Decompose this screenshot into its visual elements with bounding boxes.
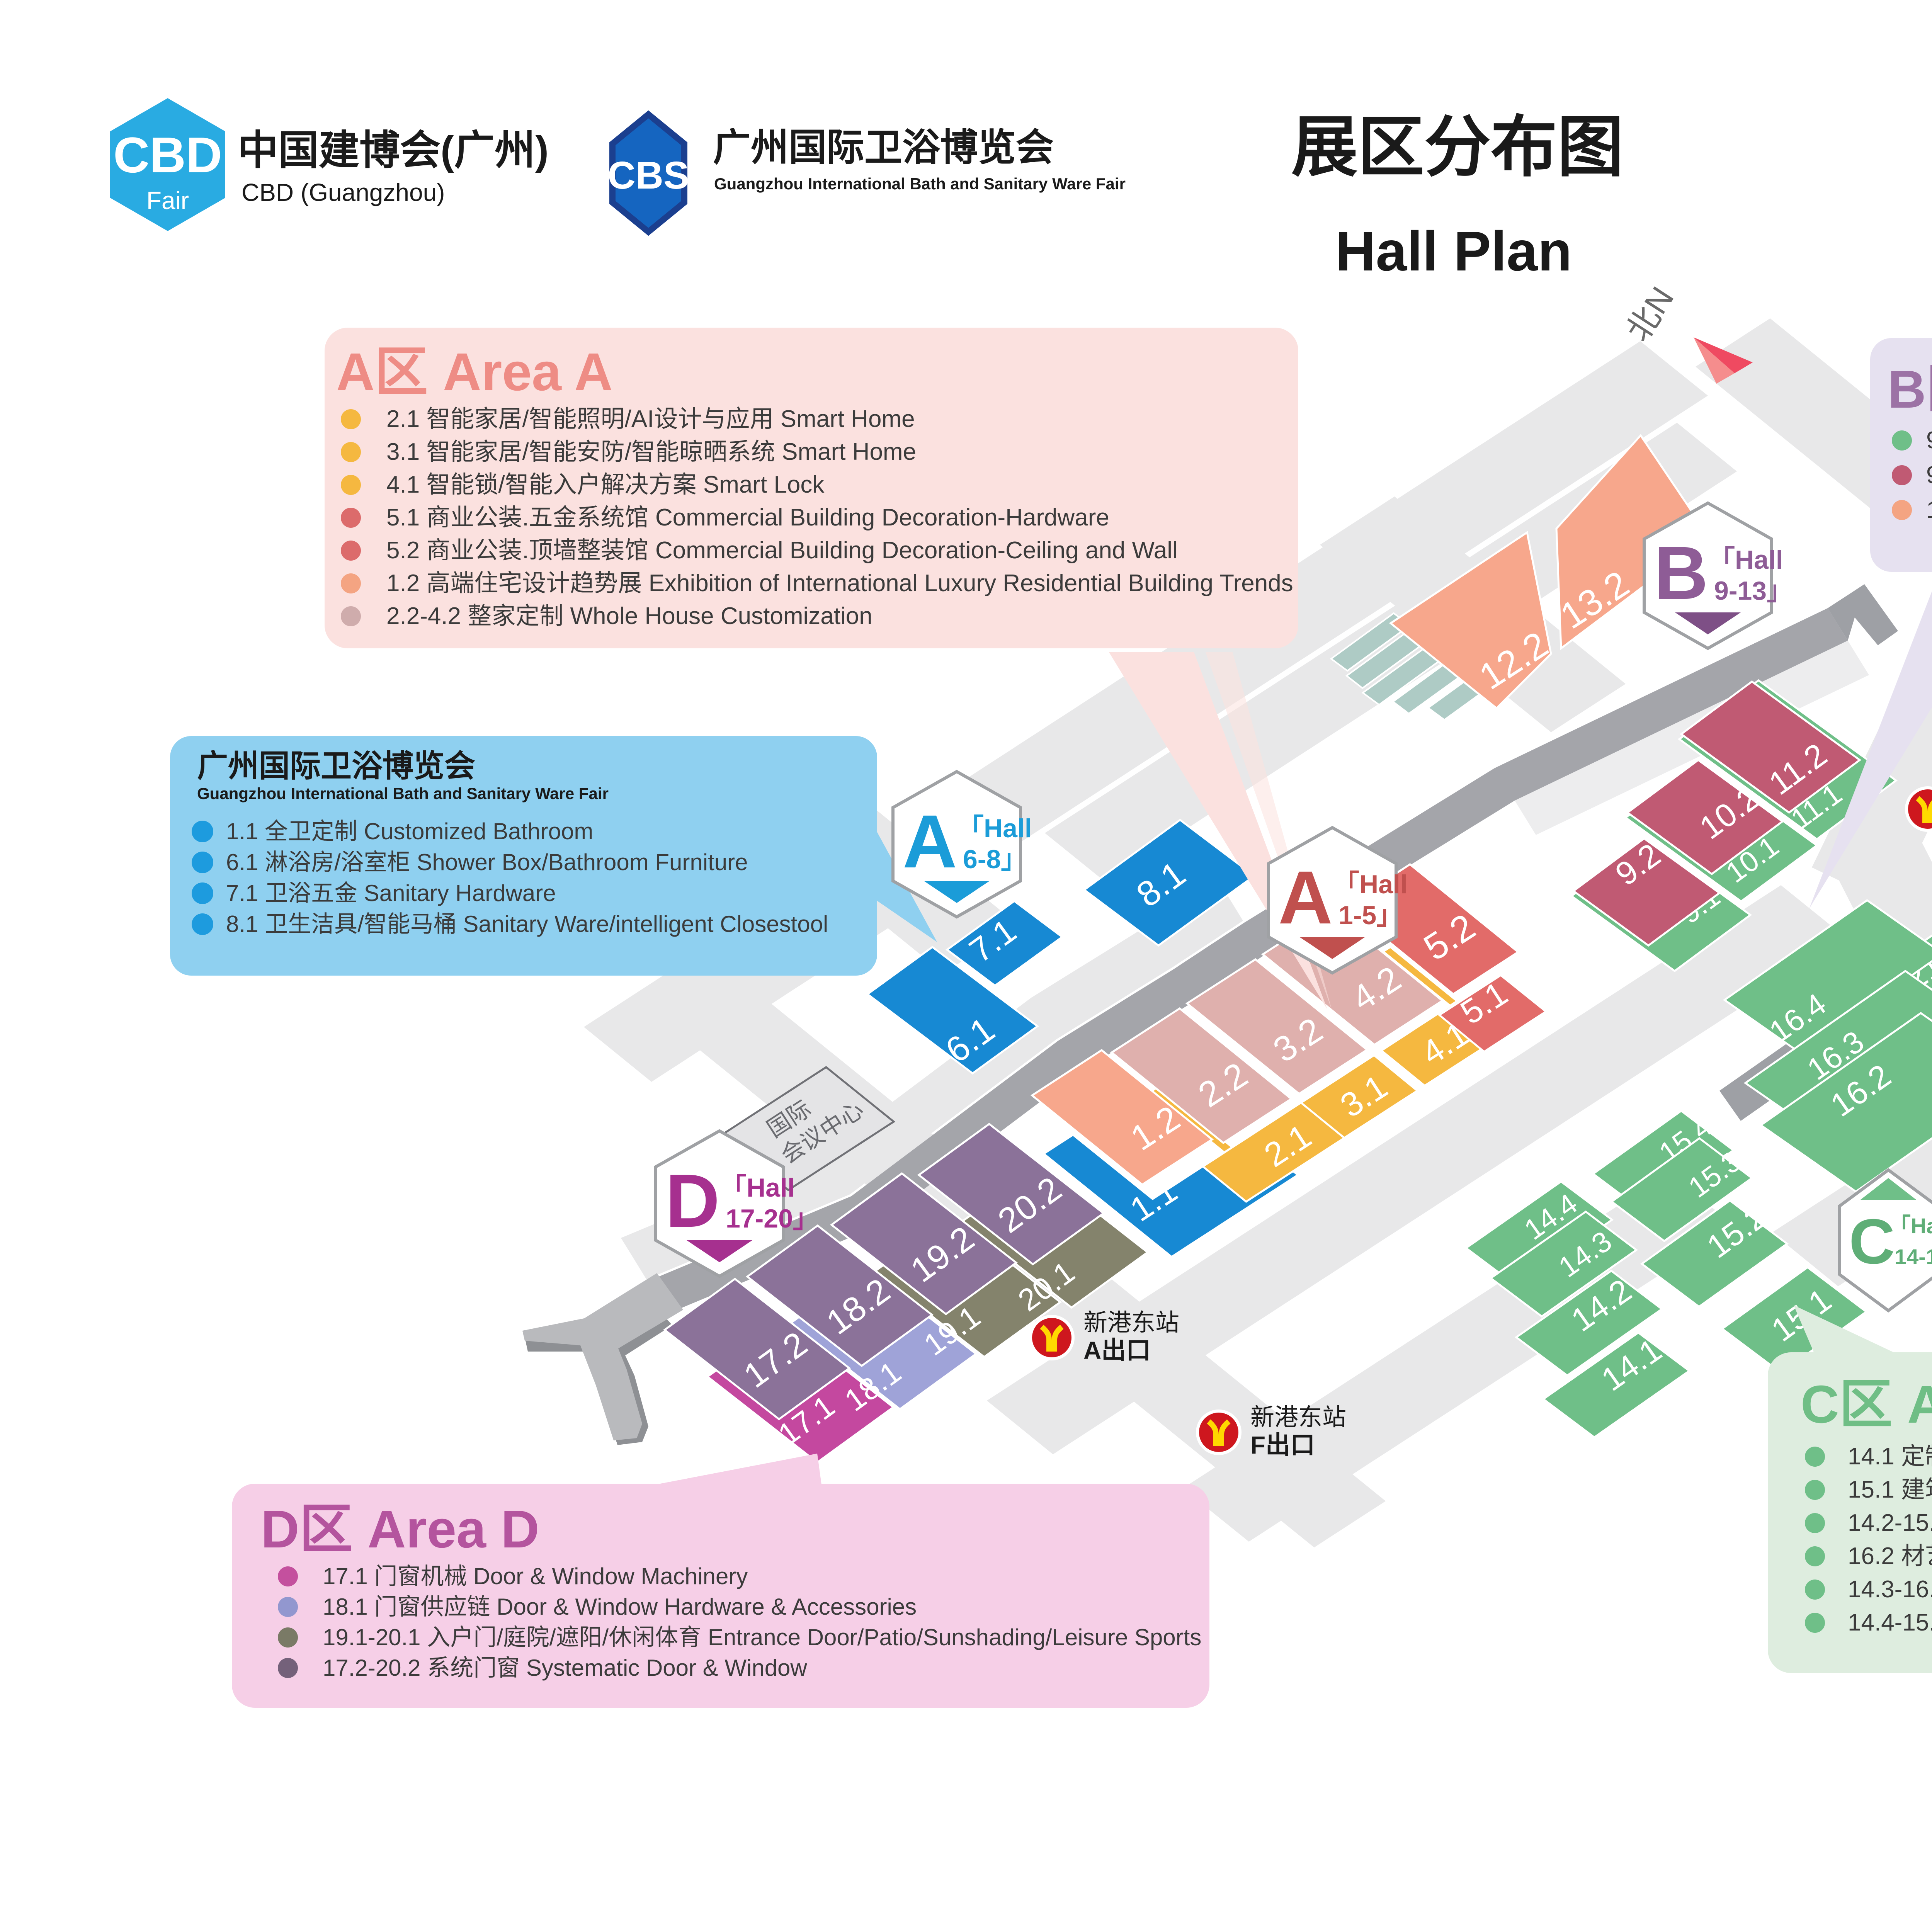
svg-text:B区 Area B: B区 Area B [1888,360,1932,419]
svg-text:6-8」: 6-8」 [963,845,1027,874]
svg-text:14.3-16.3 家居材料 Interior Decora: 14.3-16.3 家居材料 Interior Decorative Mater… [1848,1576,1932,1603]
svg-text:A区 Area A: A区 Area A [336,342,613,402]
svg-text:广州国际卫浴博览会: 广州国际卫浴博览会 [713,126,1054,168]
svg-text:「Hall: 「Hall [957,814,1032,843]
svg-text:「Hall: 「Hall [1889,1214,1932,1238]
svg-text:C区 Area C: C区 Area C [1801,1375,1932,1434]
svg-text:5.2 商业公装.顶墙整装馆 Commercial Buil: 5.2 商业公装.顶墙整装馆 Commercial Building Decor… [386,537,1178,564]
svg-text:6.1 淋浴房/浴室柜 Shower Box/Bathroo: 6.1 淋浴房/浴室柜 Shower Box/Bathroom Furnitur… [226,849,748,875]
svg-text:C: C [1849,1206,1895,1277]
svg-text:Guangzhou International Bath a: Guangzhou International Bath and Sanitar… [714,175,1126,193]
svg-text:CBD (Guangzhou): CBD (Guangzhou) [241,179,445,206]
svg-text:17.2-20.2 系统门窗 Systematic Door: 17.2-20.2 系统门窗 Systematic Door & Window [323,1655,807,1681]
svg-text:F出口: F出口 [1250,1431,1315,1459]
svg-text:1.2 高端住宅设计趋势展 Exhibition of In: 1.2 高端住宅设计趋势展 Exhibition of Internationa… [386,570,1293,597]
svg-text:2.1 智能家居/智能照明/AI设计与应用 Smart Ho: 2.1 智能家居/智能照明/AI设计与应用 Smart Home [386,406,915,432]
svg-text:17.1 门窗机械 Door & Window Machi: 17.1 门窗机械 Door & Window Machinery [323,1563,748,1589]
svg-text:9.2-11.2 设计定制馆 Design Customiz: 9.2-11.2 设计定制馆 Design Customization [1926,462,1932,488]
svg-text:7.1 卫浴五金 Sanitary Hardware: 7.1 卫浴五金 Sanitary Hardware [226,880,556,906]
svg-text:Fair: Fair [146,187,189,214]
svg-text:CBS: CBS [607,154,689,197]
svg-text:9.1-11.1 智造装备馆 Woodworking Mac: 9.1-11.1 智造装备馆 Woodworking Machinery [1926,427,1932,454]
svg-text:广州国际卫浴博览会: 广州国际卫浴博览会 [197,749,475,783]
svg-text:新港东站: 新港东站 [1250,1404,1346,1431]
svg-text:中国建博会(广州): 中国建博会(广州) [238,128,549,173]
svg-text:2.2-4.2 整家定制 Whole House Custo: 2.2-4.2 整家定制 Whole House Customization [386,603,872,629]
svg-text:9-13」: 9-13」 [1714,576,1793,605]
svg-text:18.1 门窗供应链 Door & Window Hard: 18.1 门窗供应链 Door & Window Hardware & Acce… [323,1594,917,1620]
svg-text:Guangzhou International Bath a: Guangzhou International Bath and Sanitar… [197,784,609,803]
svg-text:5.1 商业公装.五金系统馆 Commercial Buil: 5.1 商业公装.五金系统馆 Commercial Building Decor… [386,504,1109,531]
svg-text:1-5」: 1-5」 [1338,901,1403,930]
svg-text:「Hall: 「Hall [720,1173,795,1202]
svg-text:新港东站: 新港东站 [1083,1309,1179,1336]
svg-text:A: A [1278,855,1333,940]
svg-text:14.1 定制五金 Furniture Hardware: 14.1 定制五金 Furniture Hardware [1848,1443,1932,1470]
svg-text:展区分布图: 展区分布图 [1291,110,1624,184]
svg-text:A: A [903,799,957,884]
svg-text:4.1 智能锁/智能入户解决方案 Smart Lock: 4.1 智能锁/智能入户解决方案 Smart Lock [386,471,825,498]
svg-text:D: D [665,1159,720,1243]
svg-text:CBD: CBD [113,127,222,183]
svg-text:「Hall: 「Hall [1333,870,1408,899]
svg-text:A出口: A出口 [1083,1336,1151,1364]
svg-text:1.1 全卫定制 Customized Bathroom: 1.1 全卫定制 Customized Bathroom [226,818,593,844]
svg-text:「Hall: 「Hall [1709,545,1783,575]
svg-text:17-20」: 17-20」 [726,1204,819,1233]
svg-text:14.2-15.2 定制五金 Furniture Hardw: 14.2-15.2 定制五金 Furniture Hardware [1848,1510,1932,1536]
svg-text:19.1-20.1 入户门/庭院/遮阳/休闲体育 Entra: 19.1-20.1 入户门/庭院/遮阳/休闲体育 Entrance Door/P… [323,1624,1201,1650]
svg-text:8.1 卫生洁具/智能马桶 Sanitary Ware/in: 8.1 卫生洁具/智能马桶 Sanitary Ware/intelligent … [226,911,828,937]
svg-text:Hall Plan: Hall Plan [1335,220,1572,282]
svg-text:3.1 智能家居/智能安防/智能晾晒系统 Smart Hom: 3.1 智能家居/智能安防/智能晾晒系统 Smart Home [386,439,916,465]
svg-text:12.2-13.2 涂料软装馆 Coating & Furn: 12.2-13.2 涂料软装馆 Coating & Furnishing [1926,496,1932,523]
svg-text:D区 Area D: D区 Area D [261,1500,539,1559]
svg-text:15.1 建筑装饰五金 Decorative Hardwar: 15.1 建筑装饰五金 Decorative Hardware [1848,1476,1932,1503]
svg-text:16.2 材艺·国际馆 International Hall: 16.2 材艺·国际馆 International Hall -Hardware… [1848,1543,1932,1569]
svg-text:14.4-15.4 材料/五金 Material & Har: 14.4-15.4 材料/五金 Material & Hardware [1848,1609,1932,1636]
svg-text:14-16」: 14-16」 [1895,1245,1932,1269]
svg-text:B: B [1654,531,1708,615]
